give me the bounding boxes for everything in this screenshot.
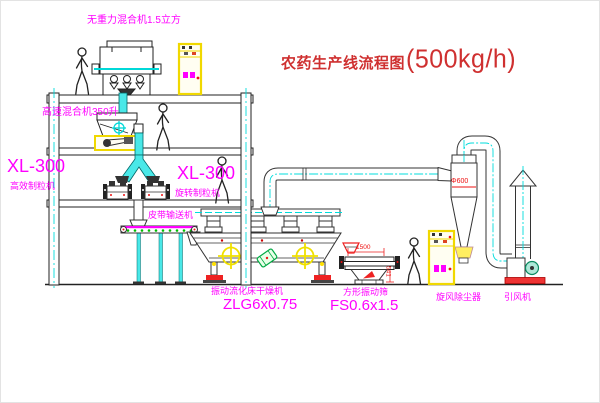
gravity-free-mixer [92,41,161,95]
fluid-bed-dryer [190,209,345,283]
dryer-domes [205,216,334,232]
granulator-high-efficiency [103,181,132,199]
dim-sieve-length: 1500 [356,245,370,252]
label-sieve-model: FS0.6x1.5 [330,298,398,313]
dim-sieve-height: 541 [384,266,391,277]
label-dryer-name: 振动流化床干燥机 [211,287,283,296]
dim-cyclone-diameter: Φ600 [451,178,468,185]
cyclone-separator [451,140,514,263]
duct-dryer-funnel [261,207,279,215]
person-floor2 [157,104,170,150]
person-ground [408,238,421,284]
cyclone-discharge-hopper [455,247,473,258]
chute-roof-to-mixer [119,93,127,114]
label-dryer-model: ZLG6x0.75 [223,297,297,312]
label-granulator-a-model: XL-300 [7,157,65,175]
pesticide-line-flow-diagram: 农药生产线流程图 (500kg/h) 无重力混合机1.5立方 高速混合机350升… [0,0,600,403]
label-fan: 引风机 [504,293,531,302]
label-gravity-mixer: 无重力混合机1.5立方 [87,16,181,26]
label-granulator-b-model: XL-300 [177,164,235,182]
page-title: 农药生产线流程图 (500kg/h) [281,46,516,75]
mixer-drive-unit [95,136,136,150]
control-cabinet-upper [179,44,201,94]
fan-base [505,278,545,284]
label-granulator-b-name: 旋转制粒机 [175,189,220,198]
label-sieve-name: 方形振动筛 [343,288,388,297]
belt-conveyor [121,226,198,284]
label-belt-conveyor: 皮带输送机 [148,211,193,220]
control-cabinet-lower [429,231,454,284]
dryer-foot-right [311,262,334,283]
person-roof [76,48,89,94]
granulator-rotary [141,181,170,199]
label-granulator-a-name: 高效制粒机 [10,182,55,191]
induced-draft-fan [505,258,545,284]
exhaust-duct [261,168,452,216]
label-high-speed-mixer: 高速混合机350升 [42,108,119,118]
dryer-foot-left [203,262,226,283]
title-chinese: 农药生产线流程图 [281,52,405,73]
title-capacity: (500kg/h) [406,45,516,75]
label-cyclone: 旋风除尘器 [436,293,481,302]
duct-cyclone-transition [438,168,452,182]
